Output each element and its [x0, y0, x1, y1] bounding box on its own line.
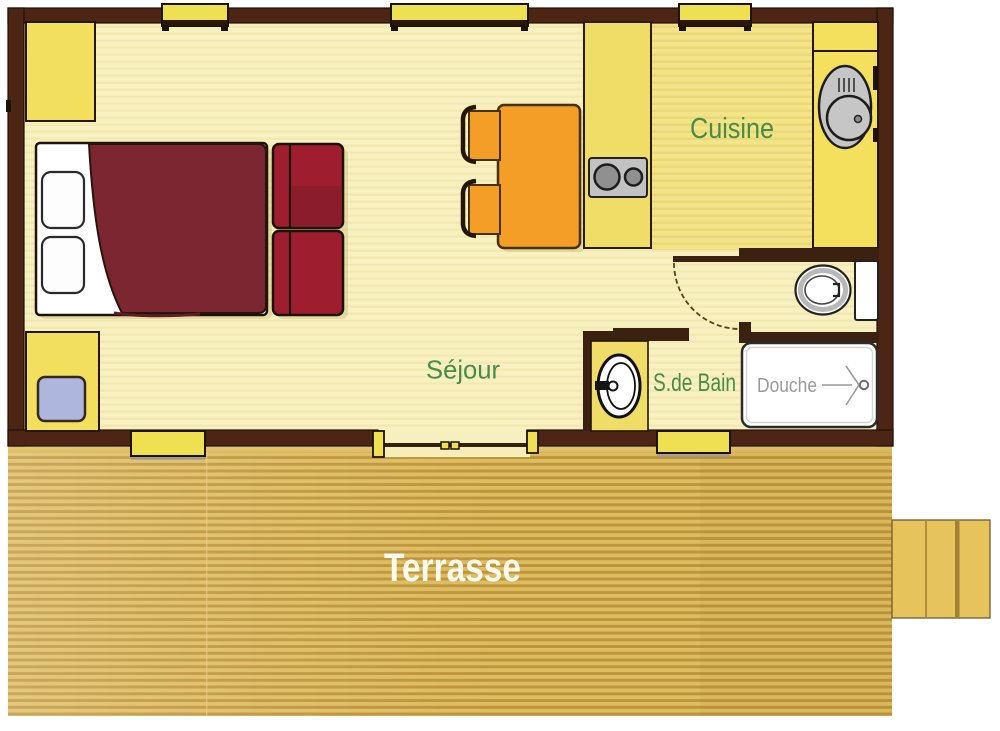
svg-text:Séjour: Séjour	[426, 355, 500, 385]
svg-text:Cuisine: Cuisine	[690, 113, 774, 145]
svg-text:Douche: Douche	[757, 375, 817, 397]
svg-text:S.de Bain: S.de Bain	[653, 369, 736, 397]
svg-text:Terrasse: Terrasse	[384, 546, 521, 590]
